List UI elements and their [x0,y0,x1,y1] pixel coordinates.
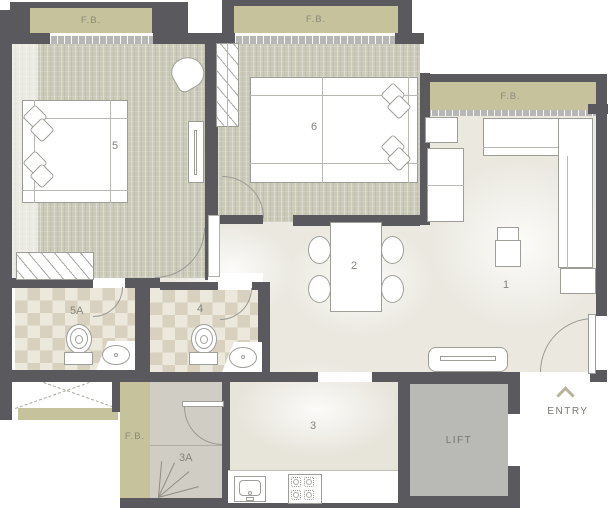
bath5A-toilet-flush [75,335,83,344]
bedroom6-wardrobe-line [227,43,228,127]
kitchen-sink-drain [248,491,252,495]
dining-label: 2 [351,260,357,272]
balcony2-right-wall [398,0,412,33]
floor-plan: LIFT F.B. F.B. F.B. [0,0,608,514]
kitchen-label: 3 [310,420,316,432]
lift-label: LIFT [446,435,473,446]
passage-wardrobe [16,252,94,280]
fb-right-flower-bed: F.B. [424,82,597,110]
living-window [424,110,597,116]
left-outer-wall [0,10,12,420]
utility-label: 3A [179,452,192,464]
bath4-north-wall [160,282,270,290]
bath4-toilet-tank [189,352,218,365]
bedroom6-label: 6 [311,121,317,133]
bath4-toilet-flush [200,335,208,344]
stove-burner-1 [291,477,301,487]
dining-chair-2 [308,275,331,303]
bedroom5-dresser-inner [194,130,197,175]
dining-chair-4 [381,275,404,303]
living-label: 1 [503,279,509,291]
bedroom5-door-leaf [208,215,220,277]
fb-right-top-wall [424,74,597,82]
balcony2-label: F.B. [306,14,326,25]
living-cabinet-divider [427,185,464,186]
entry-label: ENTRY [540,406,596,417]
side-table [560,268,596,294]
balcony2-left-wall [222,0,234,33]
bedroom6-window [235,36,395,44]
balcony1-label: F.B. [81,15,101,26]
stove-burner-4 [304,490,314,500]
balcony2-flower-bed: F.B. [234,6,398,33]
sofa-vertical [558,118,593,268]
utility-divider-line [150,445,222,446]
bath5A-label: 5A [70,305,83,317]
balcony1-left-wall [10,2,30,33]
armchair-back [497,227,519,241]
baths-south-wall-b [135,372,270,382]
entry-arrow-icon [556,386,574,404]
bath5A-basin-drain [114,353,118,357]
balcony1-flower-bed: F.B. [30,8,152,33]
bedroom5-window [50,36,153,44]
bath5A-toilet-tank [64,352,93,365]
armchair-seat [495,240,521,267]
stove-burner-2 [304,477,314,487]
entry-door-leaf [588,314,596,374]
bath4-label: 4 [197,303,203,315]
top-wall-seg3 [395,33,424,44]
duct-olive-ledge [18,408,118,420]
bed-6-headboard-line [408,77,409,183]
bed-5-runner-line [110,100,111,203]
bed-6-fold-line [322,77,323,183]
bedroom5-label: 5 [112,140,118,152]
dining-chair-1 [308,236,331,264]
fb-bottom-label: F.B. [116,431,154,442]
hall-south-wall-a [270,372,318,382]
lift-cabin: LIFT [410,384,508,496]
bed-5-sheet-line-bottom [22,190,128,191]
dining-chair-3 [381,236,404,264]
fb-bottom-strip [120,378,150,506]
lift-door-opening [508,414,520,466]
kitchen-sink-tap [246,497,254,501]
tv-unit-panel [440,356,496,361]
top-wall-seg1 [10,33,50,44]
bath4-basin-drain [241,355,245,359]
right-wall-stub [588,104,608,114]
fb-right-label: F.B. [500,91,520,102]
living-cabinet-small [425,117,458,143]
stove-burner-3 [291,490,301,500]
wall-between-baths [135,278,150,374]
balcony1-right-wall [152,2,188,33]
fb-bottom-stub-wall [112,372,120,412]
sofa-vertical-seat-line [567,156,568,268]
hall-south-wall-b [372,372,400,382]
